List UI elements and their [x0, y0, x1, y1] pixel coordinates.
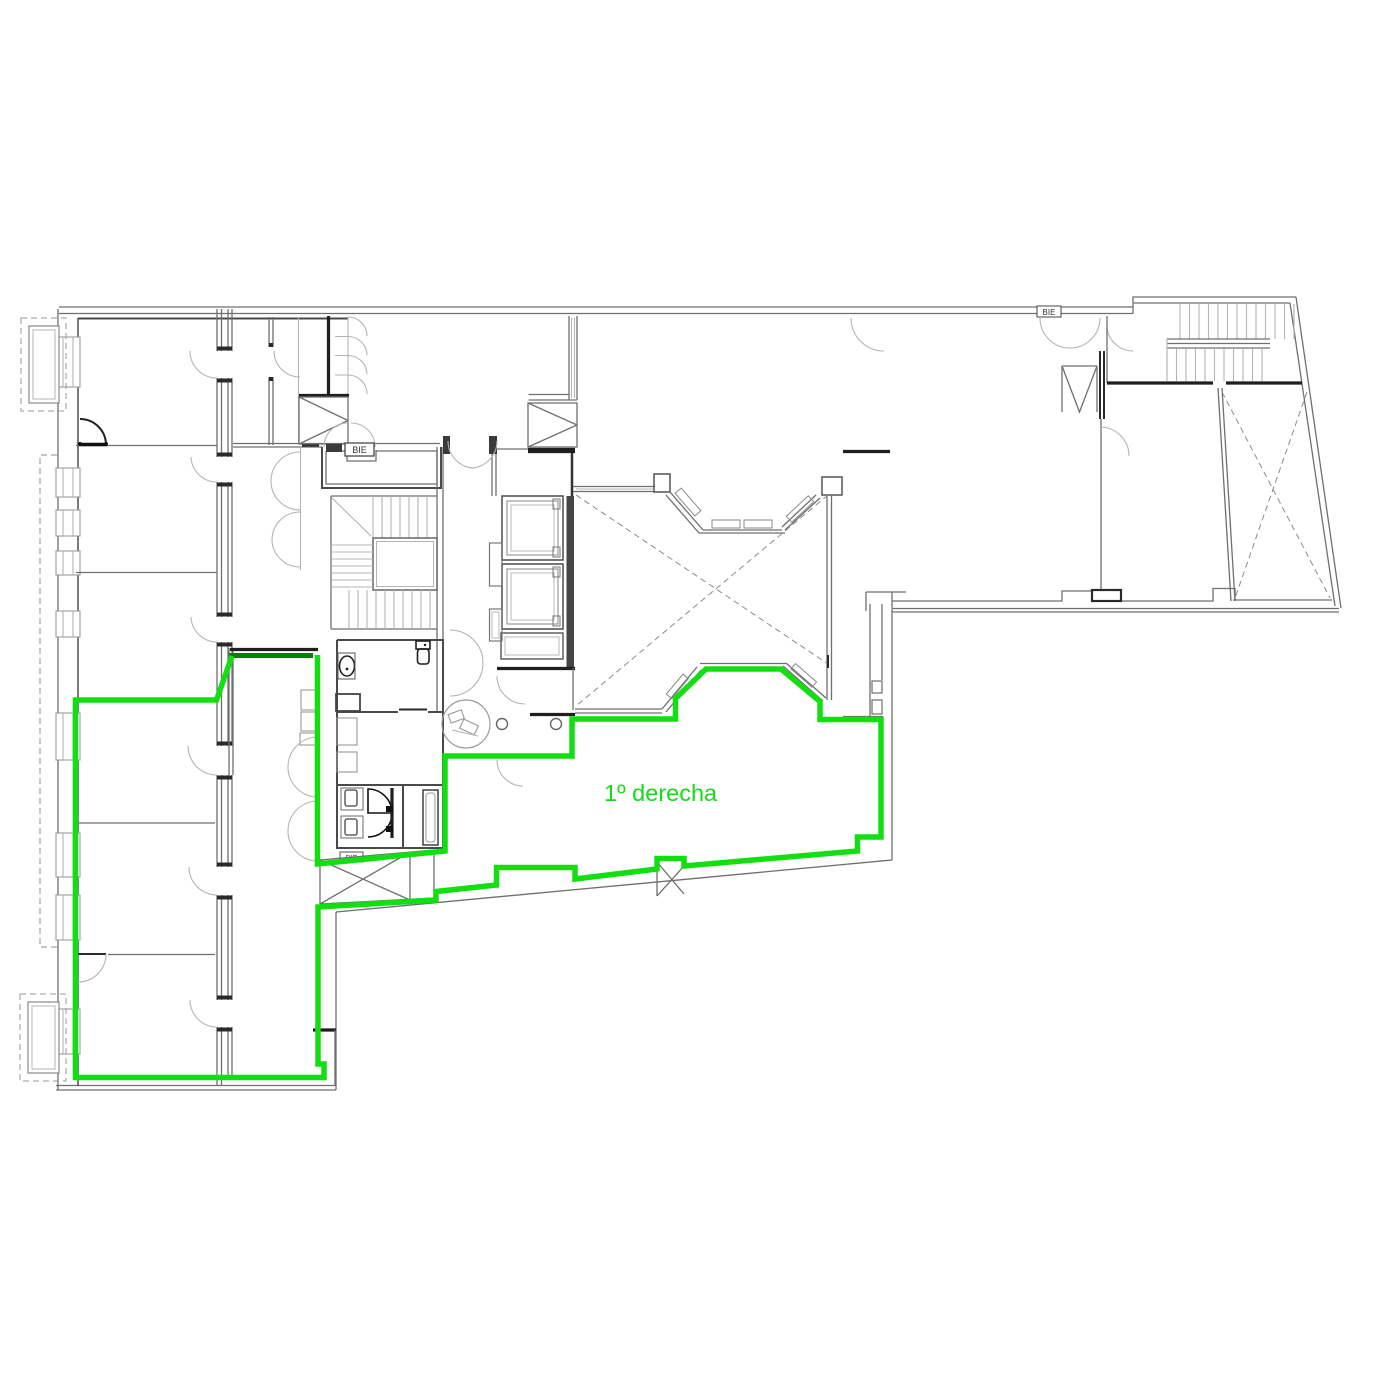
svg-text:1º derecha: 1º derecha [604, 780, 718, 806]
svg-text:BIE: BIE [1043, 308, 1056, 317]
svg-text:BIE: BIE [352, 445, 367, 455]
